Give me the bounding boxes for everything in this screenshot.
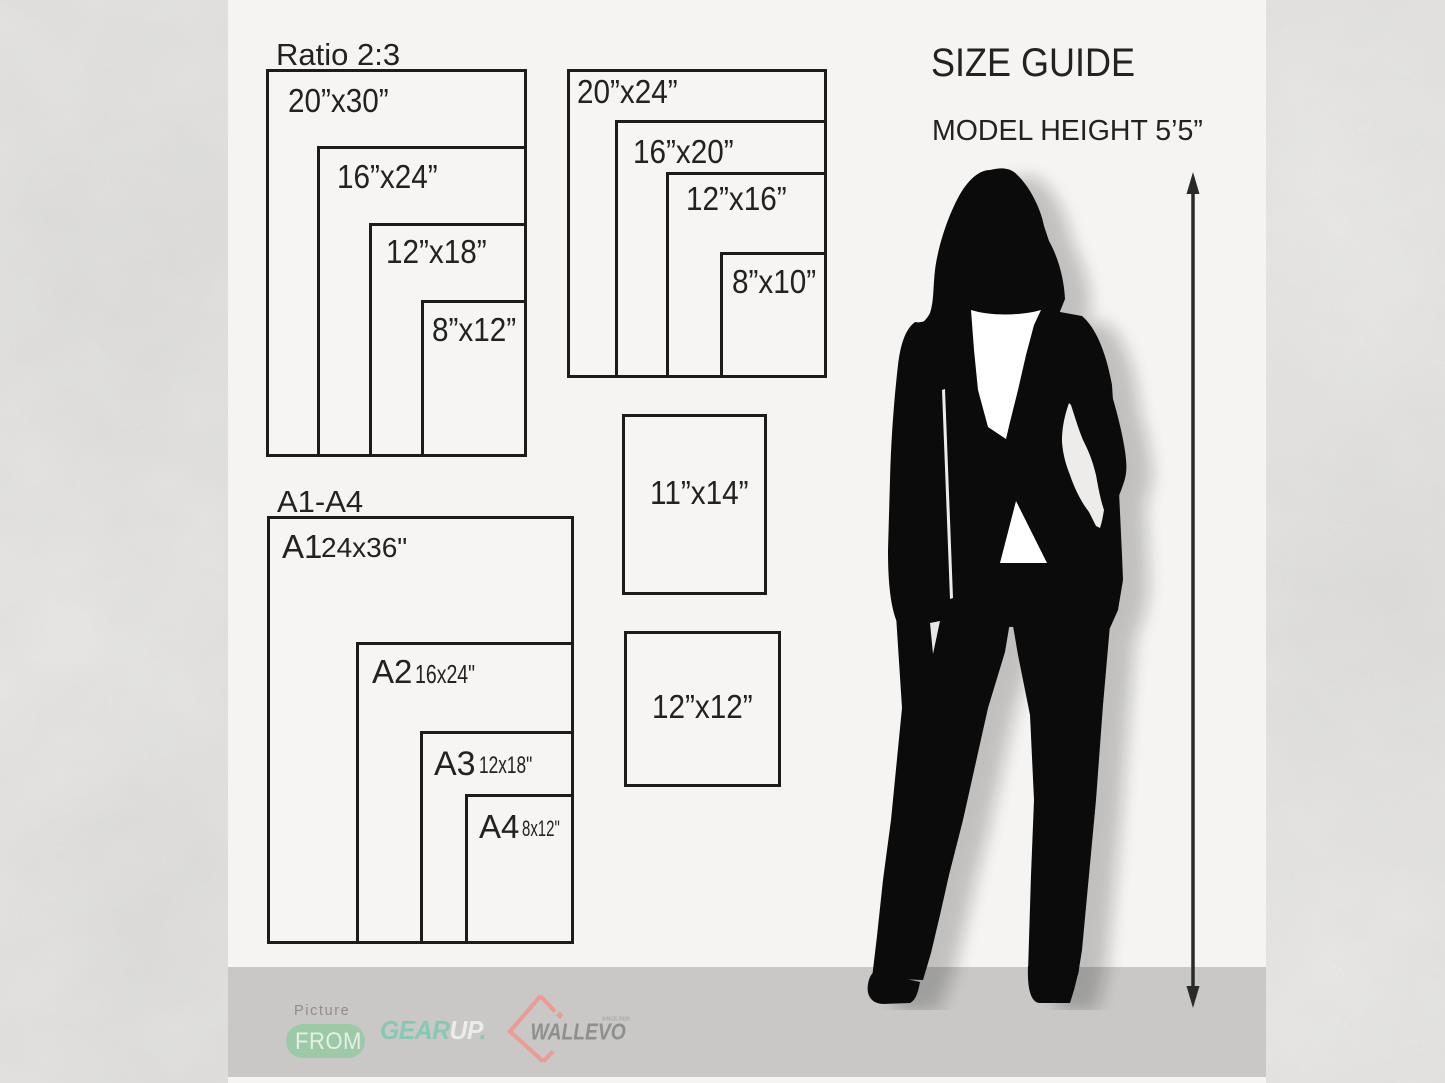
svg-text:WALLEVO: WALLEVO [531,1019,626,1045]
